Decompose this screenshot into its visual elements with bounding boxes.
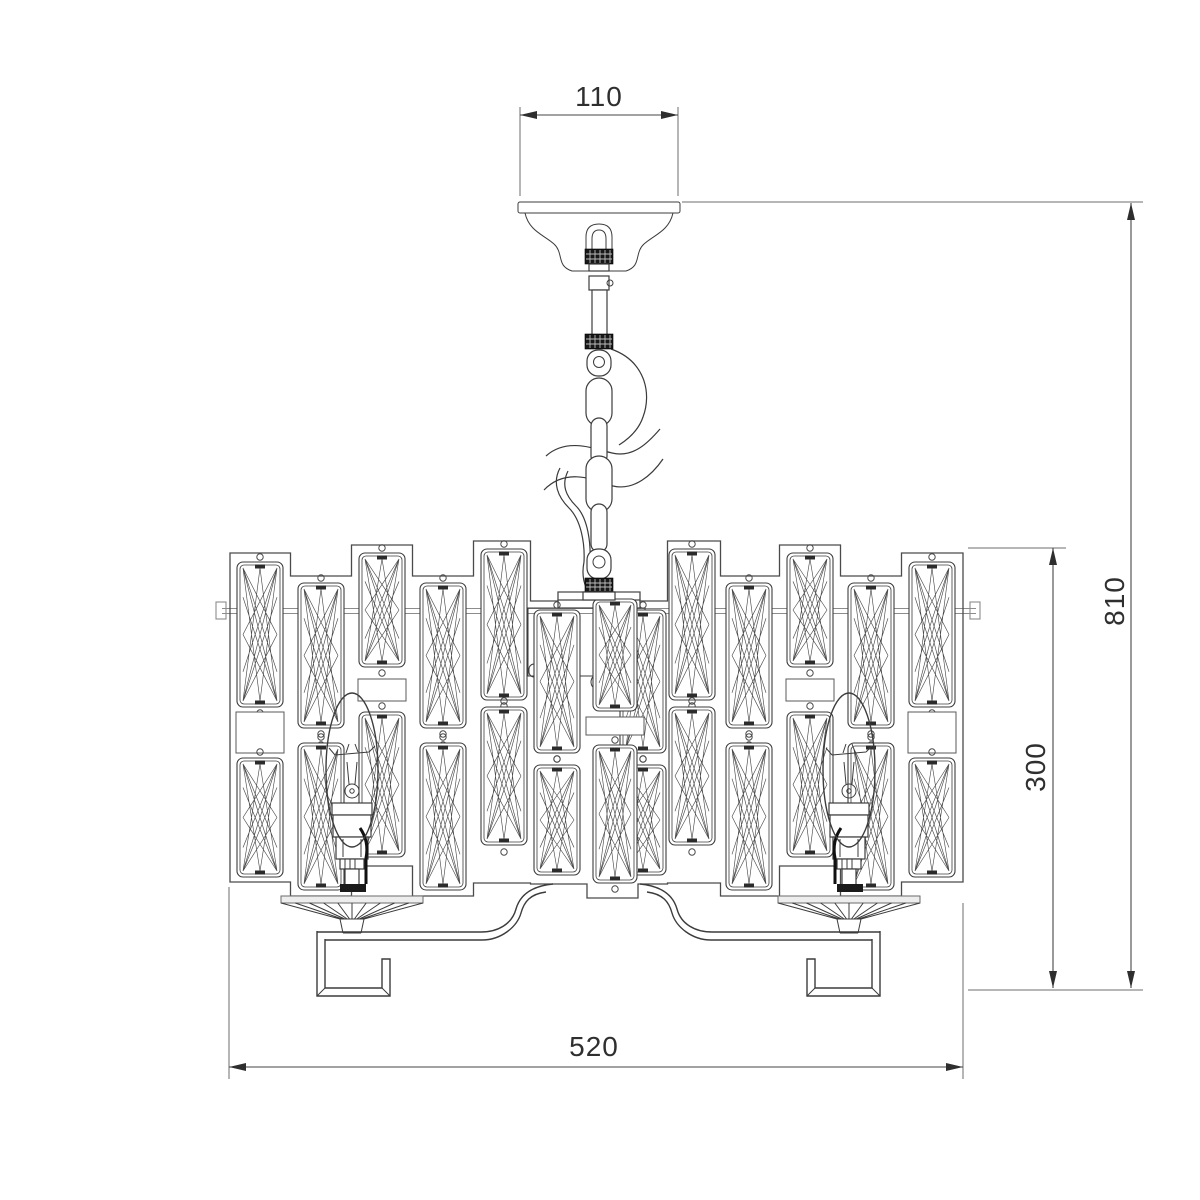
mounting-hole: [807, 670, 813, 676]
crystal-column: [420, 575, 466, 890]
mounting-hole: [640, 602, 646, 608]
right-scroll-foot: [807, 931, 880, 996]
crystal-prism: [848, 583, 894, 728]
dimension-canopy-width: 110: [520, 81, 678, 196]
crystal-prism: [237, 758, 283, 877]
crystal-prism: [593, 599, 637, 711]
blank-panel: [586, 717, 644, 735]
mounting-hole: [379, 670, 385, 676]
dimension-label-canopy-width: 110: [575, 81, 623, 112]
mounting-hole: [807, 703, 813, 709]
blank-panel: [908, 712, 956, 753]
crystal-prism: [481, 707, 527, 845]
stem-rod: [592, 290, 607, 336]
dimension-label-body-width: 520: [569, 1031, 619, 1062]
mounting-hole: [612, 737, 618, 743]
mounting-hole: [379, 545, 385, 551]
knurled-nut: [585, 249, 613, 264]
knurled-nut: [585, 578, 613, 592]
crystal-column: [726, 575, 772, 890]
dimension-body-width: 520: [229, 887, 963, 1079]
left-scroll-foot: [317, 931, 390, 996]
blank-panel: [358, 679, 406, 701]
crystal-prism: [787, 553, 833, 667]
mounting-hole: [257, 554, 263, 560]
dimension-label-overall-height: 810: [1099, 576, 1130, 626]
mounting-hole: [640, 756, 646, 762]
dimension-body-height: 300: [968, 548, 1066, 988]
crystal-column: [236, 554, 284, 877]
canopy-loop: [586, 224, 612, 252]
crystal-column: [908, 554, 956, 877]
blank-panel: [786, 679, 834, 701]
mounting-hole: [689, 541, 695, 547]
hanging-chain: [583, 334, 615, 600]
mounting-hole: [501, 849, 507, 855]
crystal-prism: [534, 765, 580, 875]
crystal-prism: [726, 583, 772, 728]
crystal-column: [669, 541, 715, 855]
crystal-prism: [534, 610, 580, 753]
crystal-prism: [359, 553, 405, 667]
crystal-prism: [909, 758, 955, 877]
crystal-prism: [909, 562, 955, 707]
bobeche-dish: [281, 896, 423, 933]
chandelier-technical-drawing-page: 110 810 300 520: [0, 0, 1200, 1200]
mounting-hole: [807, 545, 813, 551]
chandelier-technical-drawing: 110 810 300 520: [0, 0, 1200, 1200]
crystal-prism: [420, 743, 466, 890]
ceiling-canopy: [518, 202, 680, 336]
crystal-prism: [420, 583, 466, 728]
lamp-arms: [317, 884, 880, 940]
bobeche-dish: [778, 896, 920, 933]
crystal-prism: [237, 562, 283, 707]
mounting-hole: [689, 849, 695, 855]
crystal-prism: [669, 707, 715, 845]
mounting-hole: [612, 886, 618, 892]
crystal-prism: [726, 743, 772, 890]
crystal-prism: [669, 549, 715, 700]
mounting-hole: [501, 541, 507, 547]
mounting-hole: [554, 756, 560, 762]
dimension-label-body-height: 300: [1020, 742, 1051, 792]
crystal-prism: [593, 745, 637, 883]
chain-link: [591, 504, 607, 552]
mounting-hole: [929, 554, 935, 560]
crystal-prism: [481, 549, 527, 700]
chain-flange: [583, 592, 615, 600]
mounting-hole: [379, 703, 385, 709]
knurled-nut: [585, 334, 613, 349]
scroll-feet: [317, 931, 880, 996]
crystal-column: [534, 602, 580, 875]
crystal-column: [481, 541, 527, 855]
blank-panel: [236, 712, 284, 753]
